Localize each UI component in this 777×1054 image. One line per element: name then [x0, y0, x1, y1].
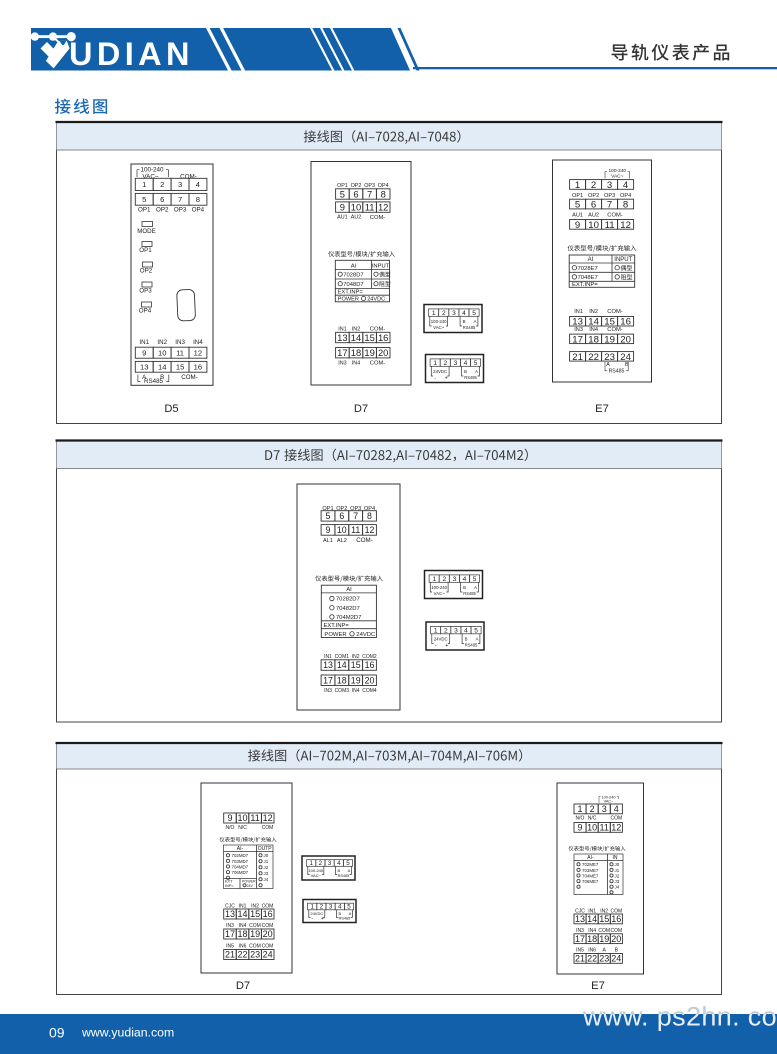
svg-text:EXT.INP=: EXT.INP= [338, 290, 364, 296]
svg-text:RS485: RS485 [464, 375, 477, 380]
svg-text:21: 21 [575, 954, 585, 964]
svg-text:B: B [463, 319, 466, 324]
svg-text:OP3: OP3 [139, 288, 152, 295]
svg-text:100-240: 100-240 [431, 585, 447, 590]
svg-text:RS485: RS485 [463, 325, 476, 330]
svg-text:17: 17 [572, 334, 583, 345]
svg-text:14: 14 [587, 914, 597, 924]
svg-text:10: 10 [237, 813, 247, 823]
svg-text:B: B [615, 948, 619, 954]
svg-text:OP4: OP4 [620, 193, 631, 199]
svg-text:4: 4 [196, 180, 200, 189]
svg-text:1: 1 [309, 860, 313, 867]
svg-text:N/O: N/O [576, 816, 585, 822]
svg-text:A: A [475, 369, 478, 374]
svg-text:AL1: AL1 [323, 538, 333, 544]
svg-text:2: 2 [443, 360, 447, 367]
svg-text:15: 15 [176, 363, 184, 372]
svg-text:24VDC: 24VDC [367, 296, 385, 302]
svg-text:24V: 24V [247, 884, 254, 888]
svg-text:16: 16 [611, 914, 621, 924]
svg-text:13: 13 [337, 332, 347, 343]
svg-text:IN2: IN2 [352, 654, 360, 660]
svg-text:IN2: IN2 [589, 309, 598, 315]
svg-text:24: 24 [611, 954, 621, 964]
svg-text:3: 3 [602, 804, 607, 814]
svg-text:5: 5 [346, 860, 350, 867]
svg-text:22: 22 [588, 352, 599, 363]
svg-text:4: 4 [614, 804, 619, 814]
svg-text:1: 1 [432, 576, 436, 583]
svg-text:9: 9 [575, 220, 580, 231]
svg-text:20: 20 [611, 934, 621, 944]
svg-text:A: A [348, 868, 351, 873]
svg-text:COM: COM [262, 944, 274, 950]
svg-text:INPUT: INPUT [614, 257, 632, 263]
svg-text:10: 10 [587, 823, 597, 833]
svg-text:OP2: OP2 [140, 268, 153, 275]
svg-text:6: 6 [353, 188, 358, 199]
svg-text:15: 15 [364, 332, 374, 343]
svg-text:4: 4 [464, 628, 468, 635]
svg-text:2: 2 [160, 180, 164, 189]
svg-text:IN6: IN6 [588, 948, 596, 954]
svg-text:706MD7: 706MD7 [232, 870, 249, 875]
svg-text:19: 19 [604, 334, 615, 345]
svg-text:J1: J1 [615, 868, 620, 873]
svg-text:24VDC: 24VDC [434, 636, 448, 641]
svg-text:15: 15 [250, 909, 260, 919]
svg-text:6: 6 [339, 511, 344, 521]
svg-text:5: 5 [474, 360, 478, 367]
svg-text:7: 7 [367, 188, 372, 199]
svg-text:2: 2 [320, 904, 324, 911]
svg-text:3: 3 [454, 360, 458, 367]
svg-text:IN2: IN2 [157, 339, 167, 346]
svg-text:VAC~: VAC~ [311, 873, 322, 878]
svg-text:IN3: IN3 [574, 327, 583, 333]
svg-text:1: 1 [432, 310, 436, 317]
svg-text:-: - [435, 643, 437, 649]
svg-text:AI: AI [346, 587, 352, 593]
svg-text:IN1: IN1 [574, 309, 583, 315]
svg-text:17: 17 [575, 934, 585, 944]
svg-text:17: 17 [225, 929, 235, 939]
svg-text:AI: AI [351, 263, 357, 269]
svg-text:D5: D5 [164, 403, 178, 415]
svg-text:AL2: AL2 [337, 538, 347, 544]
svg-text:702ME7: 702ME7 [582, 862, 599, 867]
svg-text:COM3: COM3 [335, 688, 350, 694]
svg-text:OP1: OP1 [572, 193, 583, 199]
svg-text:J0: J0 [264, 853, 269, 858]
svg-text:1: 1 [433, 360, 437, 367]
svg-text:6: 6 [160, 195, 164, 204]
svg-text:21: 21 [572, 352, 583, 363]
svg-text:OP1: OP1 [138, 207, 151, 214]
svg-text:COM4: COM4 [362, 688, 377, 694]
svg-text:POWER: POWER [324, 632, 346, 638]
svg-text:A: A [474, 319, 477, 324]
svg-text:703ME7: 703ME7 [582, 868, 599, 873]
svg-text:703MD7: 703MD7 [232, 859, 249, 864]
svg-text:B: B [465, 636, 468, 641]
svg-text:3: 3 [453, 576, 457, 583]
svg-text:100-240: 100-240 [431, 319, 447, 324]
svg-text:11: 11 [605, 220, 615, 231]
svg-text:10: 10 [158, 348, 166, 357]
svg-text:IN4: IN4 [352, 688, 360, 694]
svg-text:-: - [434, 375, 436, 381]
svg-text:7048E7: 7048E7 [578, 275, 598, 281]
svg-text:IN4: IN4 [193, 339, 203, 346]
svg-text:704ME7: 704ME7 [582, 873, 599, 878]
svg-text:OP4: OP4 [192, 207, 205, 214]
svg-text:1: 1 [310, 904, 314, 911]
svg-text:22: 22 [587, 954, 597, 964]
svg-text:706ME7: 706ME7 [582, 879, 599, 884]
svg-text:14: 14 [237, 909, 247, 919]
svg-text:3: 3 [178, 180, 182, 189]
svg-text:9: 9 [340, 202, 345, 213]
svg-text:13: 13 [140, 363, 148, 372]
svg-text:9: 9 [142, 348, 146, 357]
svg-text:COM-: COM- [180, 174, 197, 181]
svg-text:2: 2 [590, 804, 595, 814]
svg-text:B: B [338, 911, 341, 916]
svg-text:18: 18 [587, 934, 597, 944]
svg-text:11: 11 [600, 823, 609, 833]
svg-text:4: 4 [463, 576, 467, 583]
svg-text:J1: J1 [264, 859, 269, 864]
svg-text:11: 11 [351, 525, 360, 535]
svg-text:B: B [337, 868, 340, 873]
svg-text:COM-: COM- [607, 213, 623, 219]
svg-text:IN3: IN3 [175, 339, 185, 346]
svg-text:A: A [603, 948, 607, 954]
svg-text:4: 4 [338, 904, 342, 911]
svg-text:A: A [474, 585, 477, 590]
svg-text:15: 15 [351, 660, 361, 670]
svg-text:B: B [464, 369, 467, 374]
svg-text:100-240: 100-240 [140, 167, 164, 174]
svg-text:9: 9 [326, 525, 331, 535]
svg-text:1: 1 [142, 180, 146, 189]
svg-text:9: 9 [227, 813, 232, 823]
svg-text:7: 7 [607, 200, 612, 211]
svg-text:IN3: IN3 [324, 688, 332, 694]
svg-text:VAC~: VAC~ [433, 325, 445, 330]
svg-text:4: 4 [462, 310, 466, 317]
svg-text:70282D7: 70282D7 [336, 597, 360, 603]
svg-text:4: 4 [464, 360, 468, 367]
svg-text:COM-: COM- [370, 361, 386, 367]
svg-text:23: 23 [250, 950, 260, 960]
svg-text:D7: D7 [354, 403, 368, 415]
svg-text:COM: COM [262, 923, 274, 929]
svg-text:8: 8 [196, 195, 200, 204]
svg-text:J4: J4 [264, 877, 269, 882]
svg-text:J2: J2 [615, 873, 620, 878]
svg-text:J4: J4 [615, 885, 620, 890]
svg-text:7048D7: 7048D7 [343, 282, 363, 288]
svg-text:09: 09 [49, 1025, 65, 1041]
svg-text:16: 16 [378, 332, 388, 343]
svg-text:INPUT: INPUT [372, 263, 390, 269]
svg-text:IN1: IN1 [324, 654, 332, 660]
svg-text:OP4: OP4 [139, 308, 152, 315]
svg-text:AU2: AU2 [588, 213, 599, 219]
svg-text:21: 21 [225, 950, 235, 960]
svg-text:6: 6 [591, 200, 596, 211]
svg-text:14: 14 [158, 363, 166, 372]
svg-text:N/C: N/C [238, 825, 247, 831]
svg-text:3: 3 [454, 628, 458, 635]
svg-text:1: 1 [434, 628, 438, 635]
svg-text:OP3: OP3 [174, 207, 187, 214]
svg-text:N/C: N/C [588, 816, 597, 822]
svg-text:E7: E7 [595, 403, 609, 415]
svg-text:POWER: POWER [338, 296, 359, 302]
svg-text:19: 19 [351, 675, 361, 685]
svg-text:J2: J2 [264, 865, 269, 870]
svg-text:11: 11 [176, 348, 184, 357]
svg-text:COM-: COM- [607, 309, 623, 315]
svg-text:IN4: IN4 [352, 361, 360, 367]
svg-text:POWER: POWER [242, 880, 256, 884]
svg-text:5: 5 [474, 628, 478, 635]
svg-text:11: 11 [250, 813, 259, 823]
svg-text:IN3: IN3 [226, 923, 234, 929]
svg-text:17: 17 [323, 675, 333, 685]
svg-text:2: 2 [442, 576, 446, 583]
svg-text:16: 16 [263, 909, 273, 919]
svg-text:100-240: 100-240 [608, 168, 626, 174]
svg-text:IN6: IN6 [239, 944, 247, 950]
svg-text:20: 20 [378, 347, 388, 358]
svg-text:5: 5 [142, 195, 146, 204]
svg-text:8: 8 [367, 511, 372, 521]
svg-text:COM-: COM- [607, 327, 623, 333]
svg-text:IN3: IN3 [338, 361, 346, 367]
svg-text:UDIAN: UDIAN [69, 36, 194, 72]
svg-text:AU1: AU1 [337, 215, 348, 221]
svg-text:24: 24 [263, 950, 273, 960]
svg-text:J0: J0 [615, 862, 620, 867]
svg-text:7028D7: 7028D7 [343, 272, 363, 278]
svg-text:18: 18 [237, 929, 247, 939]
svg-text:OP3: OP3 [604, 193, 615, 199]
svg-text:5: 5 [340, 188, 345, 199]
svg-text:704MD7: 704MD7 [232, 864, 249, 869]
svg-text:AI-: AI- [587, 855, 594, 861]
svg-text:IN5: IN5 [226, 944, 234, 950]
svg-text:18: 18 [588, 334, 599, 345]
svg-text:3: 3 [607, 180, 612, 191]
svg-text:IN4: IN4 [239, 923, 247, 929]
svg-text:18: 18 [337, 675, 347, 685]
svg-text:2: 2 [591, 180, 596, 191]
svg-text:IN: IN [613, 855, 618, 861]
svg-text:B: B [463, 585, 466, 590]
svg-text:RS485: RS485 [339, 917, 351, 921]
svg-text:20: 20 [620, 334, 631, 345]
svg-text:+: + [321, 916, 324, 922]
svg-text:1: 1 [577, 804, 582, 814]
svg-text:14: 14 [337, 660, 347, 670]
svg-text:5: 5 [347, 904, 351, 911]
svg-text:1: 1 [575, 180, 580, 191]
svg-text:7: 7 [178, 195, 182, 204]
svg-text:12: 12 [378, 202, 388, 213]
svg-text:13: 13 [225, 909, 235, 919]
svg-text:702MD7: 702MD7 [232, 853, 249, 858]
svg-text:11: 11 [365, 202, 375, 213]
svg-text:16: 16 [365, 660, 375, 670]
svg-text:INP=: INP= [225, 884, 234, 888]
svg-text:12: 12 [194, 348, 202, 357]
svg-text:RS485: RS485 [338, 874, 350, 878]
svg-text:N/O: N/O [226, 825, 235, 831]
svg-text:5: 5 [473, 576, 477, 583]
svg-text:IN1: IN1 [139, 339, 149, 346]
svg-text:4: 4 [623, 180, 629, 191]
svg-text:EXT.INP=: EXT.INP= [324, 623, 350, 629]
svg-text:24VDC: 24VDC [433, 369, 447, 374]
svg-text:AI-: AI- [237, 846, 244, 852]
svg-text:3: 3 [328, 860, 332, 867]
svg-text:9: 9 [577, 823, 582, 833]
svg-text:8: 8 [381, 188, 386, 199]
svg-text:-: - [311, 916, 313, 922]
svg-text:17: 17 [337, 347, 347, 358]
svg-text:12: 12 [620, 220, 631, 231]
svg-text:RS485: RS485 [465, 642, 478, 647]
svg-text:COM-: COM- [181, 374, 198, 381]
svg-text:5: 5 [472, 310, 476, 317]
svg-text:IN4: IN4 [589, 327, 598, 333]
svg-text:J3: J3 [264, 871, 269, 876]
svg-text:VAC~: VAC~ [611, 173, 624, 179]
svg-text:RS485: RS485 [144, 378, 163, 385]
svg-text:7028E7: 7028E7 [578, 266, 598, 272]
svg-text:COM: COM [249, 944, 261, 950]
svg-text:OUTP: OUTP [258, 846, 273, 852]
svg-text:EXT.INP=: EXT.INP= [572, 282, 598, 288]
svg-text:OP2: OP2 [156, 207, 169, 214]
svg-text:19: 19 [250, 929, 260, 939]
svg-text:COM1: COM1 [335, 654, 350, 660]
svg-text:AU1: AU1 [572, 213, 583, 219]
svg-text:E7: E7 [591, 980, 605, 992]
svg-text:AU2: AU2 [351, 215, 362, 221]
svg-text:13: 13 [323, 660, 333, 670]
svg-text:A: A [606, 362, 610, 368]
svg-text:2: 2 [442, 310, 446, 317]
svg-text:14: 14 [351, 332, 361, 343]
svg-text:8: 8 [623, 200, 628, 211]
svg-text:MODE: MODE [137, 228, 156, 235]
svg-text:A: A [349, 911, 352, 916]
svg-text:A: A [476, 636, 479, 641]
svg-text:COM2: COM2 [362, 654, 377, 660]
svg-text:10: 10 [337, 525, 347, 535]
svg-text:10: 10 [588, 220, 599, 231]
svg-text:24VDC: 24VDC [356, 632, 376, 638]
svg-text:COM: COM [249, 923, 261, 929]
svg-text:AI: AI [588, 257, 594, 263]
svg-text:7: 7 [353, 511, 358, 521]
svg-text:4: 4 [337, 860, 341, 867]
svg-text:20: 20 [365, 675, 375, 685]
svg-text:16: 16 [194, 363, 202, 372]
svg-text:COM: COM [262, 825, 274, 831]
svg-text:12: 12 [263, 813, 273, 823]
svg-text:23: 23 [599, 954, 609, 964]
svg-text:70482D7: 70482D7 [336, 606, 360, 612]
svg-text:2: 2 [444, 628, 448, 635]
svg-text:+: + [445, 643, 448, 649]
svg-text:VAC~: VAC~ [434, 591, 446, 596]
svg-text:13: 13 [575, 914, 585, 924]
svg-text:10: 10 [351, 202, 361, 213]
svg-text:3: 3 [452, 310, 456, 317]
svg-text:VAC~: VAC~ [604, 800, 615, 804]
svg-text:3: 3 [329, 904, 333, 911]
svg-text:704M2D7: 704M2D7 [336, 615, 362, 621]
svg-text:15: 15 [599, 914, 609, 924]
svg-text:www.yudian.com: www.yudian.com [81, 1026, 174, 1040]
svg-text:OP2: OP2 [588, 193, 599, 199]
svg-text:24VDC: 24VDC [310, 911, 323, 916]
svg-text:RS485: RS485 [609, 368, 625, 374]
svg-text:20: 20 [263, 929, 273, 939]
svg-text:IN5: IN5 [576, 948, 584, 954]
svg-text:19: 19 [364, 347, 374, 358]
svg-text:12: 12 [611, 823, 621, 833]
svg-text:22: 22 [237, 950, 247, 960]
svg-text:COM: COM [610, 816, 622, 822]
svg-text:18: 18 [351, 347, 361, 358]
svg-text:COM-: COM- [370, 215, 386, 221]
svg-text:OP1: OP1 [139, 247, 152, 254]
svg-text:12: 12 [365, 525, 375, 535]
svg-text:5: 5 [326, 511, 331, 521]
svg-text:2: 2 [319, 860, 323, 867]
svg-text:RS485: RS485 [463, 591, 476, 596]
svg-text:5: 5 [575, 200, 580, 211]
svg-text:J3: J3 [615, 879, 620, 884]
svg-text:19: 19 [599, 934, 609, 944]
svg-text:+: + [445, 375, 448, 381]
svg-text:D7: D7 [236, 980, 250, 992]
svg-text:COM-: COM- [356, 537, 373, 544]
